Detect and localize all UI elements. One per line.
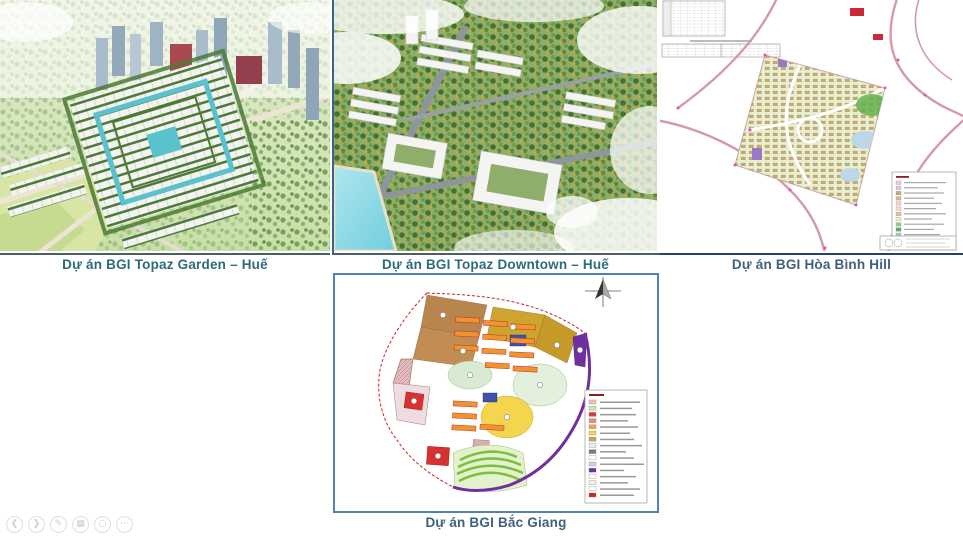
all-slides-grid-icon[interactable]: ▦ xyxy=(72,516,89,533)
legend-swatch xyxy=(589,412,596,416)
legend-swatch xyxy=(896,202,901,206)
legend-swatch xyxy=(589,425,596,429)
project-image-topaz-downtown xyxy=(332,0,661,255)
project-image-topaz-garden xyxy=(0,0,330,255)
next-slide-icon[interactable]: ❯ xyxy=(28,516,45,533)
project-image-bac-giang xyxy=(333,273,659,513)
legend-swatch xyxy=(589,468,596,472)
legend-swatch xyxy=(589,450,596,454)
green-garden-rows xyxy=(453,445,527,492)
legend-swatch xyxy=(896,197,901,201)
legend-swatch xyxy=(896,186,901,190)
legend-swatch xyxy=(589,406,596,410)
zoom-magnifier-icon[interactable]: ○ xyxy=(94,516,111,533)
legend-swatch xyxy=(589,493,596,497)
legend-swatch xyxy=(896,181,901,185)
more-options-icon[interactable]: ⋯ xyxy=(116,516,133,533)
legend-swatch xyxy=(589,456,596,460)
legend-swatch xyxy=(896,223,901,227)
slide-canvas: Dự án BGI Topaz Garden – Huế xyxy=(0,0,963,542)
legend-swatch xyxy=(589,419,596,423)
legend-swatch xyxy=(896,217,901,221)
project-image-hoa-binh-hill xyxy=(660,0,963,255)
legend-swatch xyxy=(896,207,901,211)
aerial-render-topaz-garden xyxy=(0,0,330,251)
legend-swatch xyxy=(589,431,596,435)
caption-topaz-downtown: Dự án BGI Topaz Downtown – Huế xyxy=(332,256,659,273)
legend-swatch xyxy=(589,487,596,491)
legend-swatch xyxy=(589,481,596,485)
pen-annotate-icon[interactable]: ✎ xyxy=(50,516,67,533)
legend-swatch xyxy=(896,212,901,216)
legend-swatch xyxy=(589,462,596,466)
aerial-render-topaz-downtown xyxy=(334,0,657,251)
zoning-map-bac-giang xyxy=(335,275,653,507)
legend-swatch xyxy=(896,228,901,232)
caption-hoa-binh-hill: Dự án BGI Hòa Bình Hill xyxy=(660,256,963,273)
legend-swatch xyxy=(589,400,596,404)
approval-stamp xyxy=(880,236,956,250)
previous-slide-icon[interactable]: ❮ xyxy=(6,516,23,533)
slideshow-presenter-toolbar: ❮ ❯ ✎ ▦ ○ ⋯ xyxy=(6,516,133,533)
legend-swatch xyxy=(589,474,596,478)
legend-swatch xyxy=(896,191,901,195)
caption-topaz-garden: Dự án BGI Topaz Garden – Huế xyxy=(0,256,330,273)
caption-bac-giang: Dự án BGI Bắc Giang xyxy=(333,514,659,531)
legend-swatch xyxy=(589,437,596,441)
master-plan-hoa-binh-hill xyxy=(660,0,963,251)
plan-legend-bac-giang xyxy=(585,390,647,503)
legend-swatch xyxy=(589,443,596,447)
